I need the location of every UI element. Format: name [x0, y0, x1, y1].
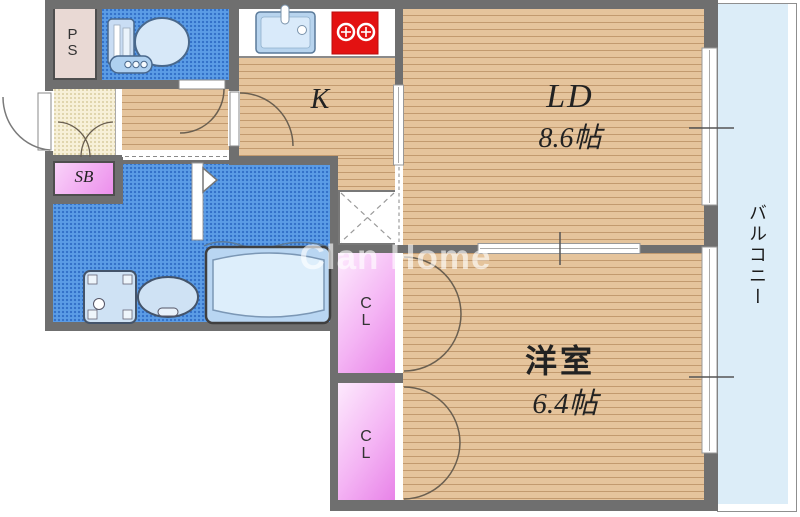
kitchen-label: K	[300, 84, 340, 116]
kitchen-ld-sliding-door	[394, 85, 404, 243]
toilet-icon	[108, 18, 189, 73]
shaft-x-marks	[341, 193, 394, 242]
toilet-door	[179, 80, 225, 133]
closet-lower-doors	[404, 387, 460, 499]
western-balcony-window	[689, 247, 734, 453]
kitchen-door	[228, 91, 293, 146]
floorplan: PS K LD 8.6帖 洋室 6.4帖 CL CL SB バルコニー Clan…	[0, 0, 800, 517]
shoe-box-doors	[58, 122, 113, 157]
ps-label: PS	[65, 27, 80, 59]
washing-machine-icon	[84, 271, 136, 323]
stove-icon	[332, 12, 378, 54]
bathroom-door	[192, 163, 217, 240]
watermark: Clan Home	[268, 238, 523, 278]
western-room-size: 6.4帖	[460, 380, 670, 422]
closet-upper-label: CL	[358, 295, 374, 330]
living-dining-size: 8.6帖	[460, 116, 680, 156]
balcony-label: バルコニー	[744, 203, 770, 413]
ld-balcony-window	[689, 48, 734, 205]
western-room-label: 洋室	[460, 336, 660, 382]
wash-basin-icon	[138, 277, 198, 317]
living-dining-label: LD	[470, 78, 670, 116]
entrance-door	[3, 91, 54, 151]
shoe-box-label: SB	[60, 167, 108, 187]
sink-icon	[256, 5, 315, 53]
closet-lower-label: CL	[358, 428, 374, 463]
